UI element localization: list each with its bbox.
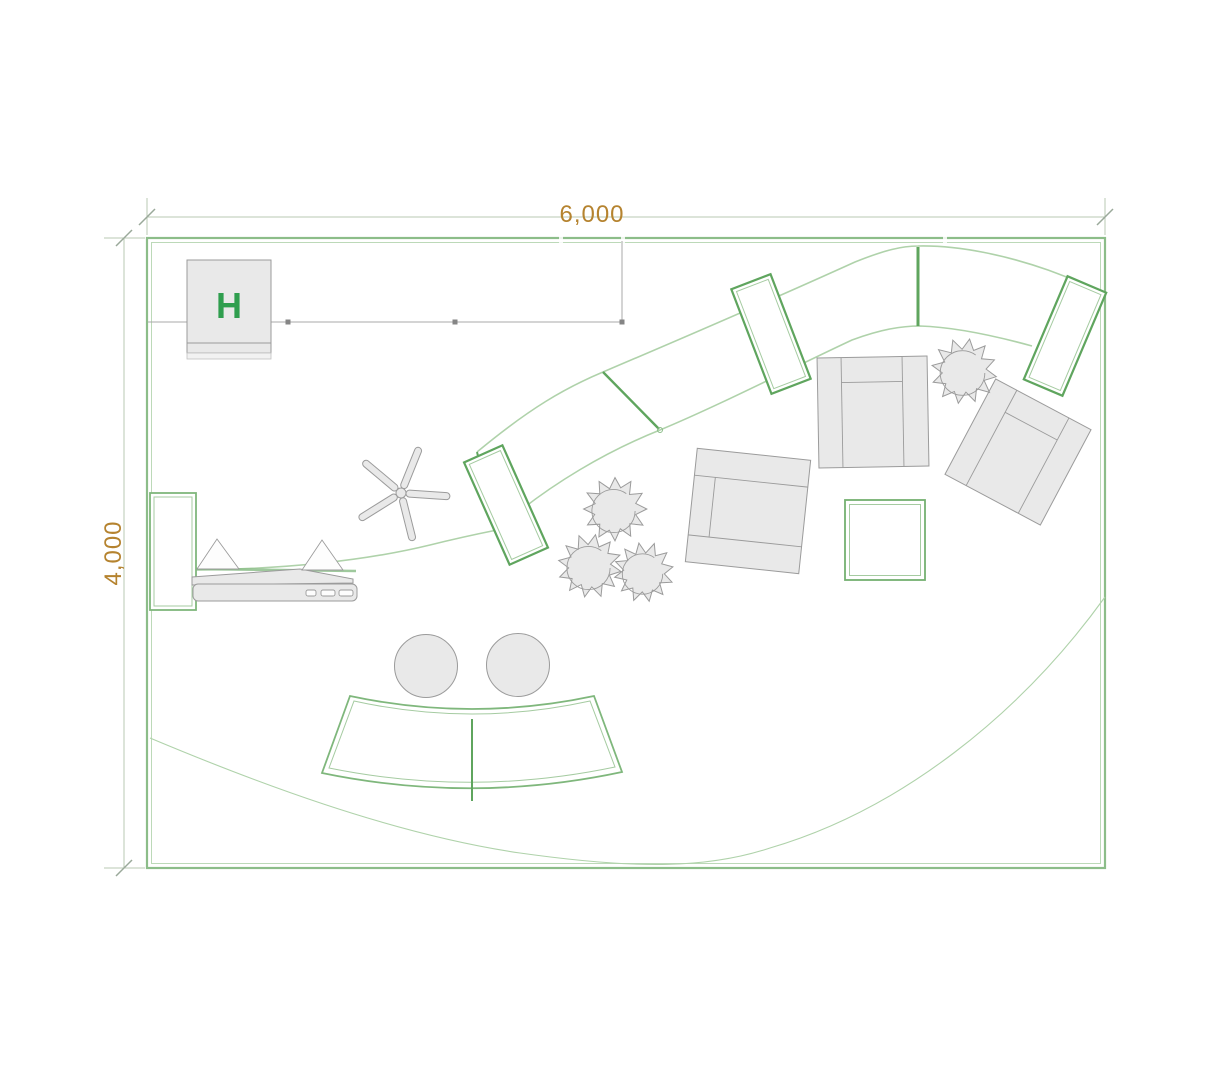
partition-curve <box>196 530 497 570</box>
plant-icon <box>559 535 621 597</box>
plant-icon <box>615 543 673 601</box>
storage-cabinet <box>150 493 196 610</box>
sofa-icon <box>685 448 810 573</box>
floor-plan-drawing: 6,000 4,000 H <box>0 0 1229 1080</box>
dimension-width-label: 6,000 <box>559 201 624 228</box>
dimension-height-label: 4,000 <box>100 520 127 585</box>
dimension-left: 4,000 <box>100 230 145 876</box>
hall-marker: H <box>187 260 271 359</box>
curved-counter-icon <box>322 696 622 801</box>
wall-panel-middle <box>731 274 810 394</box>
floor-curve <box>150 597 1105 864</box>
wall-joint <box>559 236 563 243</box>
laptop-icon <box>192 569 357 601</box>
armchair-icon <box>945 379 1091 525</box>
stool-icon <box>487 634 550 697</box>
brochure-stand-icon <box>302 540 343 570</box>
office-chair-base-icon <box>358 446 451 541</box>
floor-plan-canvas: 6,000 4,000 H <box>0 0 1229 1080</box>
brochure-stand-icon <box>197 539 239 569</box>
wall-joint <box>943 236 947 243</box>
stool-icon <box>395 635 458 698</box>
wall-panel-right <box>1024 276 1106 396</box>
dimension-top: 6,000 <box>139 198 1113 235</box>
armchair-icon <box>817 356 929 468</box>
plant-icon <box>584 478 647 541</box>
wall-panel-left <box>464 445 548 564</box>
curved-wall <box>196 246 1105 570</box>
reception-counter <box>192 539 357 601</box>
coffee-table-icon <box>845 500 925 580</box>
hall-marker-label: H <box>216 285 242 326</box>
plant-icon <box>932 339 996 403</box>
